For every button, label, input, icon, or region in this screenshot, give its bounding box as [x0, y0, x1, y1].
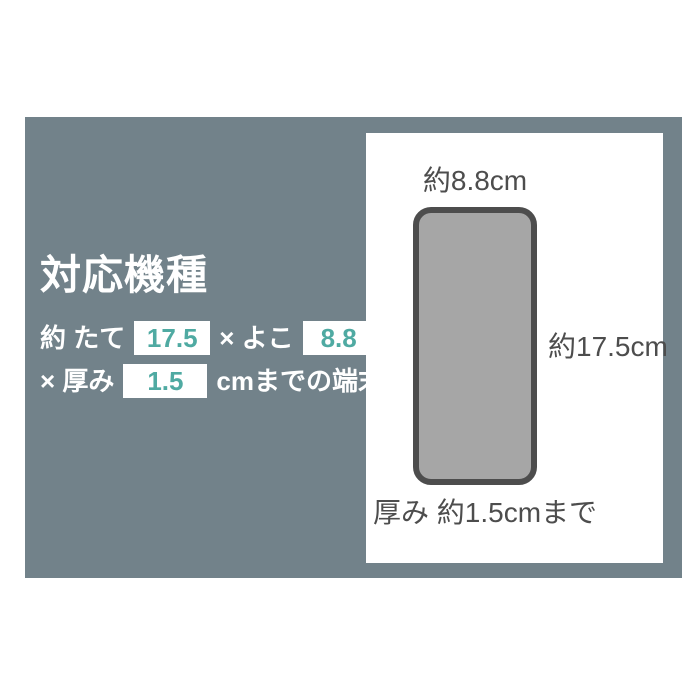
device-height-label: 約17.5cm [548, 333, 668, 361]
device-thickness-label: 厚み 約1.5cmまで [373, 499, 597, 527]
thickness-value-box: 1.5 [123, 364, 207, 398]
device-width-label: 約8.8cm [407, 167, 543, 195]
height-value-box: 17.5 [134, 321, 210, 355]
compatible-devices-title: 対応機種 [40, 255, 208, 296]
device-diagram-panel: 約8.8cm 約17.5cm 厚み 約1.5cmまで [366, 133, 663, 563]
height-prefix-label: 約 たて [40, 325, 125, 351]
device-outline-shape [413, 207, 537, 485]
unit-suffix-label: cmまでの端末 [216, 368, 384, 394]
spec-board: 対応機種 約 たて 17.5 × よこ 8.8 × 厚み 1.5 cmまでの端末… [25, 117, 682, 578]
dimensions-line-1: 約 たて 17.5 × よこ 8.8 [40, 321, 375, 355]
thickness-prefix-label: × 厚み [40, 368, 114, 394]
width-value-box: 8.8 [303, 321, 375, 355]
dimensions-line-2: × 厚み 1.5 cmまでの端末 [40, 364, 384, 398]
width-prefix-label: × よこ [219, 325, 293, 351]
